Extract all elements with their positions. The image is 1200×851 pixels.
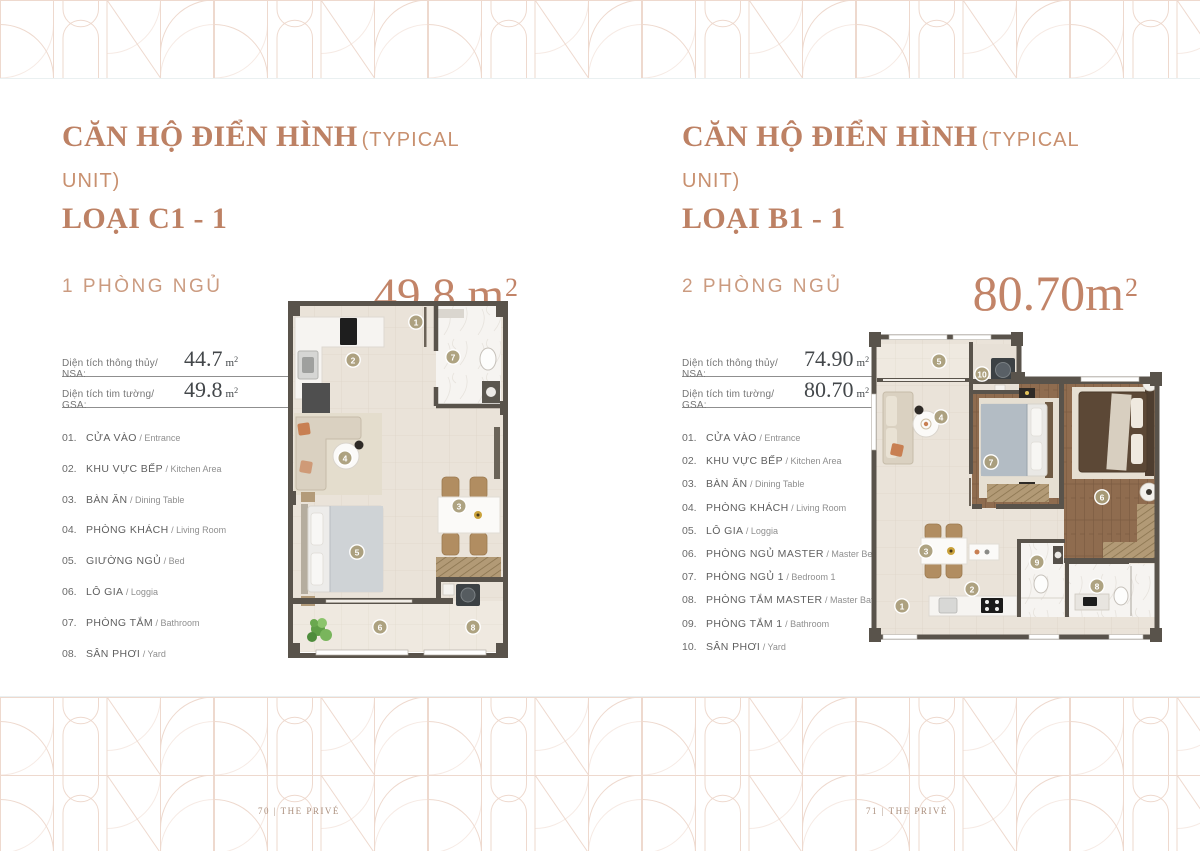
room-number-label: 4 [939,413,944,423]
area-specs: Diện tích thông thủy/ NSA: 44.7 m2 Diện … [62,346,312,408]
room-number-label: 2 [351,356,356,366]
yard [969,342,1019,394]
unit-area-number: 80.70m [973,265,1124,321]
room-number-label: 6 [1100,493,1105,503]
unit-summary-row: 2 PHÒNG NGỦ 80.70m2 [682,262,1138,322]
floor-plan-b1: 51047639281 [869,332,1162,642]
legend-item: 10.SÂN PHƠI / Yard [682,641,1138,664]
cabinet [302,383,330,413]
room-number-label: 8 [471,623,476,633]
spec-unit: m2 [226,355,239,369]
plan-notch [1019,332,1162,377]
room-number-label: 3 [457,502,462,512]
unit-title: CĂN HỘ ĐIỂN HÌNH(TYPICAL UNIT) LOẠI C1 -… [62,118,518,238]
page-footer-right: 71 | THE PRIVÉ [842,806,972,816]
spec-label: Diện tích tim tường/ GSA: [62,389,180,411]
bedroom-count-label: 1 PHÒNG NGỦ [62,262,223,298]
room-number-label: 5 [937,357,942,367]
room-number-label: 2 [970,585,975,595]
bedroom-count-label: 2 PHÒNG NGỦ [682,262,843,298]
room-number-label: 5 [355,548,360,558]
living-area [294,413,382,495]
unit-title-vi: CĂN HỘ ĐIỂN HÌNH [62,120,358,153]
arc-pattern-band-top [0,0,1200,79]
page-footer-left: 70 | THE PRIVÉ [234,806,364,816]
spec-label: Diện tích tim tường/ GSA: [682,389,800,411]
master-bathroom [1065,560,1157,617]
unit-title: CĂN HỘ ĐIỂN HÌNH(TYPICAL UNIT) LOẠI B1 -… [682,118,1138,238]
unit-area-exponent: 2 [505,273,518,302]
floor-plan-c1: 12743568 [288,301,508,658]
unit-title-vi: CĂN HỘ ĐIỂN HÌNH [682,120,978,153]
room-number-label: 7 [989,458,994,468]
spec-label: Diện tích thông thủy/ NSA: [62,358,180,380]
spec-value: 74.90 [804,346,854,372]
spec-value: 80.70 [804,377,854,403]
spec-row-nsa: Diện tích thông thủy/ NSA: 44.7 m2 [62,346,312,377]
room-number-label: 7 [451,353,456,363]
wardrobe [436,557,501,579]
spec-row-gsa: Diện tích tim tường/ GSA: 49.8 m2 [62,377,312,408]
spec-value: 44.7 [184,346,223,372]
unit-type-label: LOẠI B1 - 1 [682,202,846,235]
room-number-label: 1 [414,318,419,328]
room-number-label: 1 [900,602,905,612]
unit-type-label: LOẠI C1 - 1 [62,202,227,235]
bed-area [301,492,383,606]
room-number-label: 8 [1095,582,1100,592]
room-number-label: 4 [343,454,348,464]
room-number-label: 9 [1035,558,1040,568]
bathroom1 [1017,539,1065,617]
loggia-divider [877,378,972,382]
kitchen-counter [929,596,1017,616]
spec-unit: m2 [857,355,870,369]
spec-value: 49.8 [184,377,223,403]
spec-label: Diện tích thông thủy/ NSA: [682,358,800,380]
room-number-label: 10 [977,370,987,380]
arc-pattern-band-bottom [0,696,1200,851]
media-cabinet [494,427,500,479]
unit-area-large: 80.70m2 [973,262,1138,319]
room-number-label: 6 [378,623,383,633]
unit-area-exponent: 2 [1125,273,1138,302]
bedroom1 [979,388,1059,502]
brochure-page: { "page": { "footer_left": "70 | THE PRI… [0,0,1200,850]
spec-unit: m2 [857,386,870,400]
entrance-door [424,307,427,347]
room-number-label: 3 [924,547,929,557]
spec-unit: m2 [226,386,239,400]
